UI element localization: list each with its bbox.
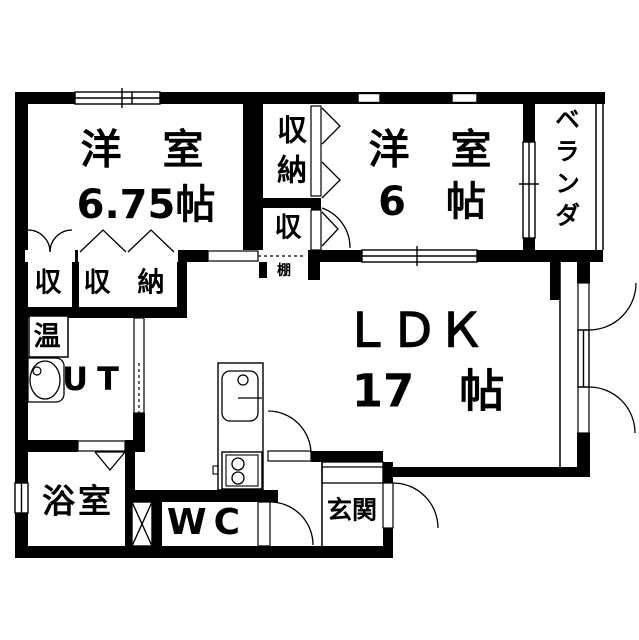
floor-plan: 洋 室 6.75帖 収納 収 洋 室 6 帖 ベランダ 収 収 納 温 UT Ｌ… <box>0 0 639 640</box>
window-western2-veranda <box>519 142 539 238</box>
closet-center-label: 収納 <box>273 114 303 194</box>
washbasin-icon <box>28 358 64 402</box>
double-door-closet-left-small <box>28 230 72 252</box>
pipe-space-box <box>132 502 152 546</box>
bathroom-label: 浴室 <box>42 485 114 518</box>
shelf-label: 棚 <box>277 264 291 278</box>
room-western2-label: 洋 室 <box>369 130 492 171</box>
door-wc <box>258 502 313 546</box>
window-western1-top <box>75 88 160 108</box>
entrance-step <box>322 462 383 483</box>
veranda-outline <box>596 104 603 250</box>
kitchen-counter <box>213 363 263 490</box>
closet-left-small-label: 収 <box>35 270 62 297</box>
closet-center-small-label: 収 <box>275 215 302 242</box>
sliding-door-western2-ldk <box>362 246 477 266</box>
folding-door-closet-center <box>311 106 350 250</box>
door-kitchen-hall <box>268 411 311 461</box>
water-heater-label: 温 <box>34 324 61 351</box>
room-western2-size: 6 帖 <box>378 182 486 222</box>
utility-label: UT <box>62 363 128 395</box>
floor-plan-drawing <box>0 0 639 640</box>
closet-left-label: 収 納 <box>84 270 165 297</box>
room-western1-size: 6.75帖 <box>77 185 216 225</box>
ldk-size: 17 帖 <box>352 369 505 414</box>
toilet-label: WC <box>167 505 247 541</box>
ldk-label: ＬＤＫ <box>344 308 485 355</box>
veranda-label: ベランダ <box>554 106 579 234</box>
room-western1-label: 洋 室 <box>81 130 204 171</box>
entrance-label: 玄関 <box>327 498 377 523</box>
folding-door-closet-left <box>80 230 174 252</box>
